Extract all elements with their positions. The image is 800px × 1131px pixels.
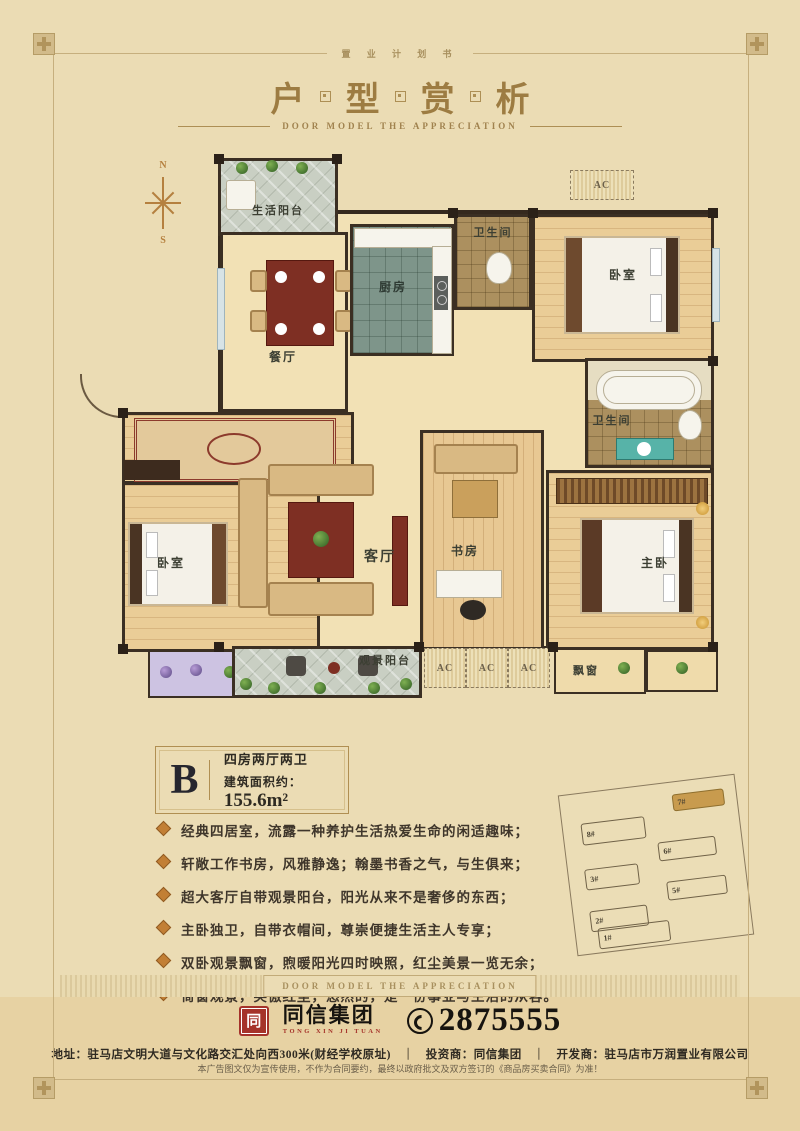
- lamp-icon: [696, 502, 709, 515]
- toilet-icon: [678, 410, 702, 440]
- developer-text: 开发商：驻马店市万润置业有限公司: [556, 1049, 748, 1061]
- separator: ｜: [402, 1049, 414, 1061]
- seal-glyph: 同: [246, 1010, 261, 1031]
- separator: ｜: [533, 1049, 545, 1061]
- compass-icon: N S: [138, 160, 188, 246]
- phone-block: 2875555: [407, 1002, 562, 1039]
- building-label: 8#: [586, 829, 595, 839]
- site-building: 6#: [657, 836, 717, 862]
- title-ornament-icon: [320, 91, 331, 102]
- footer-logo-row: 同 同信集团 TONG XIN JI TUAN 2875555: [0, 1002, 800, 1039]
- dining-table: [266, 260, 334, 346]
- diamond-bullet-icon: [156, 920, 172, 936]
- building-label: 1#: [603, 933, 612, 943]
- chair-icon: [460, 600, 486, 620]
- title-char: 析: [496, 72, 530, 121]
- ac-unit-label: AC: [570, 170, 634, 200]
- label-master: 主卧: [620, 554, 690, 571]
- compass-north-label: N: [138, 160, 188, 171]
- title-subtitle: DOOR MODEL THE APPRECIATION: [0, 121, 800, 131]
- compass-south-label: S: [138, 235, 188, 246]
- bay-window-master: 飘窗: [554, 648, 646, 694]
- plant-icon: [266, 160, 278, 172]
- poster-page: 置 业 计 划 书 户 型 赏 析 DOOR MODEL THE APPRECI…: [0, 0, 800, 1131]
- title-char: 户: [271, 72, 305, 121]
- stove-icon: [434, 276, 448, 310]
- feature-text: 经典四居室，流露一种养护生活热爱生命的闲适趣味；: [181, 820, 529, 840]
- site-building: 3#: [584, 863, 640, 890]
- chair-icon: [286, 656, 306, 676]
- feature-item: 轩敞工作书房，风雅静逸；翰墨书香之气，与生俱来；: [158, 853, 558, 873]
- vanity-icon: [616, 438, 674, 460]
- site-building: 8#: [580, 816, 646, 846]
- label-master-bath: 卫生间: [572, 412, 652, 428]
- unit-area-label: 建筑面积约：: [224, 775, 302, 789]
- feature-item: 超大客厅自带观景阳台，阳光从来不是奢侈的东西；: [158, 886, 558, 906]
- address-text: 地址：驻马店文明大道与文化路交汇处向西300米(财经学校原址): [52, 1049, 391, 1061]
- ac-unit-label: AC: [508, 648, 550, 688]
- title-char: 赏: [421, 72, 455, 121]
- feature-text: 主卧独卫，自带衣帽间，尊崇便捷生活主人专享；: [181, 919, 500, 939]
- logo-subtext: TONG XIN JI TUAN: [283, 1029, 383, 1036]
- kitchen-counter: [354, 228, 452, 248]
- label-bedroom-left: 卧室: [136, 554, 206, 571]
- toilet-icon: [486, 252, 512, 284]
- title-ornament-icon: [395, 91, 406, 102]
- label-bedroom-top: 卧室: [588, 266, 658, 283]
- diamond-bullet-icon: [156, 887, 172, 903]
- corner-ornament-icon: [746, 1077, 768, 1099]
- plant-icon: [296, 162, 308, 174]
- window: [217, 268, 225, 350]
- page-title: 户 型 赏 析: [0, 72, 800, 121]
- building-label: 5#: [672, 885, 681, 895]
- footer-address-row: 地址：驻马店文明大道与文化路交汇处向西300米(财经学校原址) ｜ 投资商：同信…: [0, 1046, 800, 1062]
- building-label: 6#: [663, 846, 672, 856]
- site-building-highlighted: 7#: [672, 788, 726, 811]
- site-building: 5#: [666, 875, 728, 901]
- unit-type: 四房两厅两卫: [224, 749, 344, 768]
- feature-item: 主卧独卫，自带衣帽间，尊崇便捷生活主人专享；: [158, 919, 558, 939]
- window: [712, 248, 720, 322]
- diamond-bullet-icon: [156, 854, 172, 870]
- console-table: [124, 460, 180, 480]
- desk-icon: [436, 570, 502, 598]
- ac-unit-label: AC: [466, 648, 508, 688]
- wardrobe-closet: [556, 478, 708, 504]
- footer-band-box: DOOR MODEL THE APPRECIATION: [263, 975, 536, 997]
- tagline-text: 置 业 计 划 书: [327, 47, 472, 60]
- corner-ornament-icon: [33, 1077, 55, 1099]
- label-kitchen: 厨房: [358, 278, 428, 295]
- chair-icon: [250, 270, 267, 292]
- investor-text: 投资商：同信集团: [426, 1049, 522, 1061]
- chair-icon: [250, 310, 267, 332]
- building-label: 2#: [595, 916, 604, 926]
- feature-text: 双卧观景飘窗，煦暖阳光四时映照，红尘美景一览无余；: [181, 952, 544, 972]
- building-label: 7#: [677, 797, 686, 807]
- title-char: 型: [346, 72, 380, 121]
- footer-band-text: DOOR MODEL THE APPRECIATION: [282, 981, 517, 991]
- sofa-icon: [268, 464, 374, 496]
- unit-letter: B: [160, 759, 209, 801]
- unit-area-value: 155.6m²: [224, 790, 288, 811]
- top-tagline: 置 业 计 划 书: [0, 44, 800, 62]
- rule-line: [530, 126, 622, 127]
- floor-plan: N S 生活阳台 餐厅: [118, 148, 728, 713]
- logo-name: 同信集团: [283, 1005, 383, 1026]
- subtitle-text: DOOR MODEL THE APPRECIATION: [282, 121, 517, 131]
- label-life-balcony: 生活阳台: [222, 202, 334, 218]
- bathtub-icon: [596, 370, 702, 410]
- building-label: 3#: [590, 874, 599, 884]
- footer-band: DOOR MODEL THE APPRECIATION: [60, 975, 740, 997]
- feature-item: 经典四居室，流露一种养护生活热爱生命的闲适趣味；: [158, 820, 558, 840]
- title-ornament-icon: [470, 91, 481, 102]
- rule-line: [178, 126, 270, 127]
- feature-text: 轩敞工作书房，风雅静逸；翰墨书香之气，与生俱来；: [181, 853, 529, 873]
- window-sill: [646, 650, 718, 692]
- label-bay-window: 飘窗: [556, 662, 616, 678]
- site-plan-inset: 8# 7# 6# 3# 5# 2# 1#: [558, 774, 754, 956]
- ac-unit-label: AC: [424, 648, 466, 688]
- diamond-bullet-icon: [156, 821, 172, 837]
- diamond-bullet-icon: [156, 953, 172, 969]
- label-bath-top: 卫生间: [456, 224, 530, 240]
- phone-number: 2875555: [439, 1002, 562, 1039]
- footer-disclaimer: 本广告图文仅为宣传使用，不作为合同要约，最终以政府批文及双方签订的《商品房买卖合…: [0, 1062, 800, 1075]
- logo-text-block: 同信集团 TONG XIN JI TUAN: [283, 1005, 383, 1036]
- tongxin-seal-logo-icon: 同: [239, 1006, 269, 1036]
- sofa-icon: [238, 478, 268, 608]
- plant-icon: [236, 162, 248, 174]
- unit-info-box: B 四房两厅两卫 建筑面积约：155.6m²: [155, 746, 349, 814]
- bed-icon: [564, 236, 680, 334]
- coffee-table: [288, 502, 354, 578]
- sofa-icon: [268, 582, 374, 616]
- label-study: 书房: [430, 542, 500, 559]
- sofa-icon: [434, 444, 518, 474]
- lamp-icon: [696, 616, 709, 629]
- feature-text: 超大客厅自带观景阳台，阳光从来不是奢侈的东西；: [181, 886, 515, 906]
- phone-icon: [407, 1008, 433, 1034]
- label-living: 客厅: [340, 546, 420, 566]
- feature-item: 双卧观景飘窗，煦暖阳光四时映照，红尘美景一览无余；: [158, 952, 558, 972]
- label-dining: 餐厅: [243, 348, 323, 365]
- study-table: [452, 480, 498, 518]
